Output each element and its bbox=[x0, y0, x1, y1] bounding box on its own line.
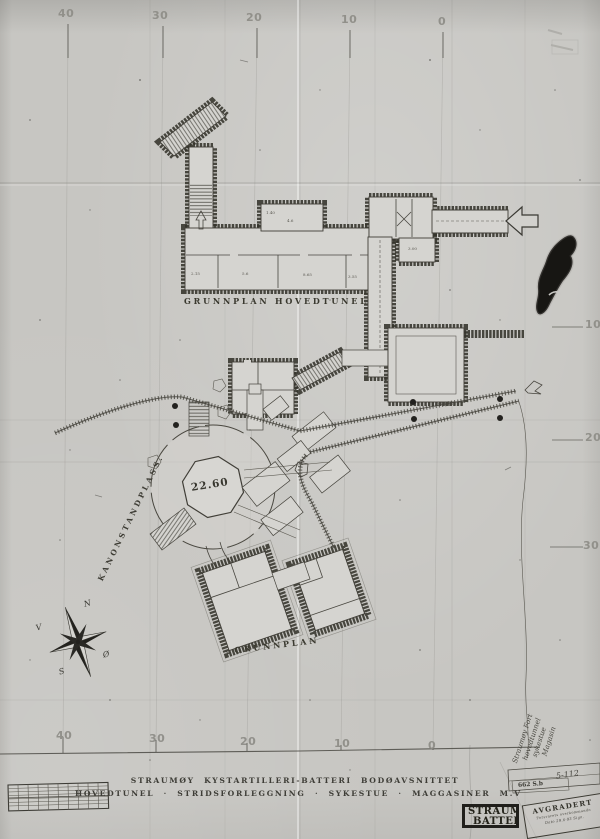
dim-label: 4.6 bbox=[287, 219, 293, 223]
plan-drawing bbox=[0, 0, 600, 839]
faint-marks bbox=[548, 30, 578, 54]
dim-label: 2.15 bbox=[191, 272, 200, 276]
ruler-top-30: 30 bbox=[152, 10, 168, 21]
ruler-top-40: 40 bbox=[58, 8, 74, 19]
battery-stamp-line2: BATTERI bbox=[468, 817, 516, 827]
ruler-bottom-0: 0 bbox=[428, 740, 436, 751]
dim-label: 3.00 bbox=[408, 247, 417, 251]
drawing-title-line1: STRAUMØY KYSTARTILLERI-BATTERI BODØAVSNI… bbox=[95, 777, 495, 785]
ruler-top-0: 0 bbox=[438, 16, 446, 27]
ruler-top-10: 10 bbox=[341, 14, 357, 25]
dim-label: 5.6 bbox=[242, 272, 248, 276]
road-arrow-east bbox=[525, 381, 542, 394]
ruler-right-10: 10 bbox=[585, 319, 600, 330]
paper-creases bbox=[0, 0, 600, 839]
scanned-plan-document: 40 30 20 10 0 40 30 20 10 0 10 20 30 GRU… bbox=[0, 0, 600, 839]
main-tunnel-complex bbox=[160, 102, 538, 377]
compass-rose bbox=[37, 597, 119, 687]
ruler-bottom-20: 20 bbox=[240, 736, 256, 747]
ink-blob bbox=[536, 235, 577, 314]
ruler-top-20: 20 bbox=[246, 12, 262, 23]
scan-noise bbox=[29, 59, 591, 771]
main-plan-caption: GRUNNPLAN HOVEDTUNEL bbox=[184, 297, 369, 305]
entrance-arrow bbox=[506, 207, 538, 235]
ruler-bottom-40: 40 bbox=[56, 730, 72, 741]
dim-label: 1.40 bbox=[266, 211, 275, 215]
ruler-right-20: 20 bbox=[585, 432, 600, 443]
ruler-right-30: 30 bbox=[583, 540, 599, 551]
compass-east-label: Ø bbox=[102, 650, 110, 659]
ruler-bottom-30: 30 bbox=[149, 733, 165, 744]
dim-label: 3.55 bbox=[348, 275, 357, 279]
dim-label: 8.65 bbox=[303, 273, 312, 277]
drawing-title-line2: HOVEDTUNEL · STRIDSFORLEGGNING · SYKESTU… bbox=[75, 790, 495, 798]
ruler-bottom-10: 10 bbox=[334, 738, 350, 749]
battery-stamp: STRAUMØY BATTERI bbox=[462, 804, 519, 828]
